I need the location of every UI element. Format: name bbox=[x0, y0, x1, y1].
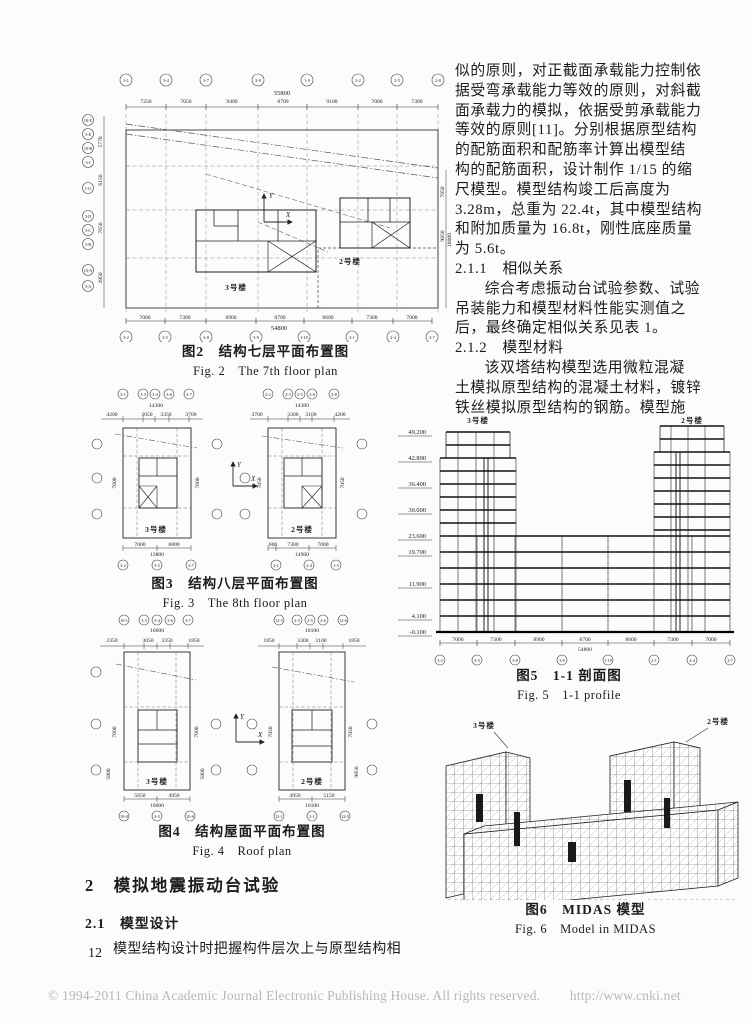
svg-text:7000: 7000 bbox=[139, 315, 150, 321]
svg-text:1-10: 1-10 bbox=[604, 658, 612, 663]
tower3-label: 3号楼 bbox=[467, 415, 489, 425]
dims-top: 7250 7050 9400 8700 9100 7000 7300 bbox=[126, 99, 438, 110]
svg-text:3-7: 3-7 bbox=[186, 392, 192, 397]
svg-text:9100: 9100 bbox=[326, 99, 337, 105]
svg-text:3-9: 3-9 bbox=[559, 658, 565, 663]
floor-plan-8th-drawing: 3-1 3-3 3-4 3-6 3-7 14300 4200 3050 3350… bbox=[85, 386, 385, 574]
svg-text:12-5: 12-5 bbox=[341, 814, 349, 819]
svg-text:12-3: 12-3 bbox=[275, 618, 283, 623]
svg-text:7050: 7050 bbox=[348, 726, 354, 737]
svg-text:2-3: 2-3 bbox=[285, 392, 291, 397]
svg-text:2-2: 2-2 bbox=[265, 392, 271, 397]
body-line: 等效的原则[11]。分别根据原型结构 bbox=[455, 121, 751, 141]
svg-text:3-E: 3-E bbox=[85, 132, 91, 137]
body-line: 后，最终确定相似关系见表 1。 bbox=[455, 319, 751, 339]
svg-text:7300: 7300 bbox=[490, 637, 501, 643]
svg-text:7000: 7000 bbox=[371, 99, 382, 105]
svg-text:1-G: 1-G bbox=[85, 186, 92, 191]
svg-text:2-5: 2-5 bbox=[307, 618, 313, 623]
svg-text:X: X bbox=[250, 475, 256, 483]
svg-text:3-8: 3-8 bbox=[203, 335, 209, 340]
svg-text:3号楼: 3号楼 bbox=[145, 524, 167, 534]
axis-arrows: Y X bbox=[236, 713, 264, 742]
svg-text:7600: 7600 bbox=[112, 477, 118, 488]
svg-text:1-10: 1-10 bbox=[300, 335, 308, 340]
svg-text:7250: 7250 bbox=[140, 99, 151, 105]
svg-text:10-1: 10-1 bbox=[120, 618, 128, 623]
grid-bubbles-top: 3-1 3-4 3-7 3-8 1-9 2-2 2-5 2-8 bbox=[120, 74, 444, 86]
tower2-label: 2号楼 bbox=[681, 415, 703, 425]
svg-text:5800: 5800 bbox=[200, 768, 206, 779]
svg-text:3350: 3350 bbox=[160, 412, 171, 418]
fig5-caption-zh: 图5 1-1 剖面图 bbox=[388, 666, 750, 686]
svg-text:10100: 10100 bbox=[305, 803, 319, 809]
svg-text:2-7: 2-7 bbox=[429, 335, 435, 340]
svg-text:3-2: 3-2 bbox=[123, 335, 129, 340]
svg-text:7000: 7000 bbox=[452, 637, 463, 643]
svg-text:4950: 4950 bbox=[289, 793, 300, 799]
svg-text:8900: 8900 bbox=[225, 315, 236, 321]
svg-text:2-1: 2-1 bbox=[309, 814, 315, 819]
svg-text:7000: 7000 bbox=[134, 542, 145, 548]
svg-text:1-9: 1-9 bbox=[304, 78, 310, 83]
figure-5-profile: 49.200 42.800 36.400 30.000 23.600 19.70… bbox=[388, 414, 750, 704]
svg-text:Y: Y bbox=[269, 192, 274, 200]
figure-4-roof-plan: 10-1 3-3 3-4 3-6 3-7 10600 2350 3050 335… bbox=[82, 612, 402, 860]
svg-text:2-1: 2-1 bbox=[651, 658, 657, 663]
svg-text:2-4: 2-4 bbox=[390, 335, 396, 340]
svg-text:30.000: 30.000 bbox=[408, 507, 426, 514]
body-line: 尺模型。模型结构竣工后高度为 bbox=[455, 181, 751, 201]
svg-text:8600: 8600 bbox=[322, 315, 333, 321]
svg-text:10-B: 10-B bbox=[84, 146, 93, 151]
svg-text:4950: 4950 bbox=[168, 793, 179, 799]
svg-text:12-6: 12-6 bbox=[339, 618, 347, 623]
svg-text:3100: 3100 bbox=[305, 412, 316, 418]
svg-text:3950: 3950 bbox=[98, 272, 104, 283]
core-tower-2 bbox=[340, 198, 410, 248]
svg-text:2-7: 2-7 bbox=[727, 658, 733, 663]
svg-text:3-D: 3-D bbox=[85, 214, 92, 219]
svg-text:14300: 14300 bbox=[295, 403, 309, 409]
svg-text:2-5: 2-5 bbox=[394, 78, 400, 83]
svg-text:8700: 8700 bbox=[277, 99, 288, 105]
svg-text:2-8: 2-8 bbox=[331, 392, 337, 397]
fig2-caption-en: Fig. 2 The 7th floor plan bbox=[78, 362, 453, 380]
svg-text:9850: 9850 bbox=[440, 230, 446, 241]
svg-text:4200: 4200 bbox=[334, 412, 345, 418]
copyright-footer: © 1994-2011 China Academic Journal Elect… bbox=[48, 988, 728, 1004]
svg-text:2-1: 2-1 bbox=[349, 335, 355, 340]
svg-text:8700: 8700 bbox=[579, 637, 590, 643]
svg-text:49.200: 49.200 bbox=[408, 429, 426, 436]
footer-text: © 1994-2011 China Academic Journal Elect… bbox=[48, 988, 540, 1003]
section-2-1-paragraph: 模型结构设计时把握构件层次上与原型结构相 bbox=[85, 938, 445, 958]
body-line: 似的原则，对正截面承载能力控制依 bbox=[455, 62, 751, 82]
fig2-caption-zh: 图2 结构七层平面布置图 bbox=[78, 342, 453, 362]
svg-text:5650: 5650 bbox=[134, 793, 145, 799]
svg-text:7050: 7050 bbox=[257, 477, 263, 488]
fig4-caption-zh: 图4 结构屋面平面布置图 bbox=[82, 822, 402, 842]
grid-bubbles-bottom: 3-2 3-5 3-8 3-9 1-10 2-1 2-4 2-7 bbox=[435, 655, 735, 665]
body-line: 该双塔结构模型选用微粒混凝 bbox=[455, 359, 751, 379]
svg-text:3-7: 3-7 bbox=[185, 618, 191, 623]
svg-text:5800: 5800 bbox=[106, 768, 112, 779]
tower3-plan: 3-1 3-3 3-4 3-6 3-7 14300 4200 3050 3350… bbox=[92, 389, 222, 570]
svg-text:2-1: 2-1 bbox=[273, 563, 279, 568]
fig4-caption-en: Fig. 4 Roof plan bbox=[82, 842, 402, 860]
tower2-plan: 2-2 2-3 2-5 2-6 2-8 14300 3700 3300 3100… bbox=[240, 389, 367, 570]
figure-3-floor-plan: 3-1 3-3 3-4 3-6 3-7 14300 4200 3050 3350… bbox=[85, 386, 385, 612]
grid-bubbles-bottom: 3-2 3-5 3-8 3-9 1-10 2-1 2-4 2-7 bbox=[120, 331, 438, 342]
svg-text:42.800: 42.800 bbox=[408, 455, 426, 462]
fig3-caption-en: Fig. 3 The 8th floor plan bbox=[85, 594, 385, 612]
page-number: 12 bbox=[88, 946, 102, 962]
svg-text:7300: 7300 bbox=[179, 315, 190, 321]
svg-text:2-8: 2-8 bbox=[435, 78, 441, 83]
svg-text:3-7: 3-7 bbox=[188, 563, 194, 568]
svg-text:7050: 7050 bbox=[340, 477, 346, 488]
body-line: 构的配筋面积，设计制作 1/15 的缩 bbox=[455, 161, 751, 181]
svg-text:7600: 7600 bbox=[195, 477, 201, 488]
body-line: 据受弯承载能力等效的原则，对斜截 bbox=[455, 82, 751, 102]
svg-text:3-5: 3-5 bbox=[154, 814, 160, 819]
grid-bubbles-left: 10-E 3-E 10-B 3-J 1-G 3-D 3-C 3-B 10-A 3… bbox=[83, 115, 105, 309]
svg-text:14300: 14300 bbox=[149, 403, 163, 409]
body-line: 面承载力的模拟，依据受剪承载能力 bbox=[455, 102, 751, 122]
svg-text:3-1: 3-1 bbox=[120, 392, 126, 397]
svg-text:36.400: 36.400 bbox=[408, 481, 426, 488]
figure-6-midas-model: 3号楼 2号楼 图6 MIDAS 模型 Fig. 6 Model in MIDA… bbox=[418, 702, 753, 938]
svg-text:54800: 54800 bbox=[578, 647, 592, 653]
plan-outline bbox=[126, 124, 438, 308]
svg-text:3700: 3700 bbox=[251, 412, 262, 418]
svg-text:11.900: 11.900 bbox=[409, 581, 426, 588]
paper-page: 3-1 3-4 3-7 3-8 1-9 2-2 2-5 2-8 55800 72… bbox=[0, 0, 753, 1024]
svg-text:6150: 6150 bbox=[98, 174, 104, 185]
svg-text:3-8: 3-8 bbox=[255, 78, 261, 83]
svg-text:3-5: 3-5 bbox=[474, 658, 480, 663]
svg-text:10600: 10600 bbox=[150, 803, 164, 809]
svg-text:14900: 14900 bbox=[295, 552, 309, 558]
svg-text:19.700: 19.700 bbox=[408, 549, 426, 556]
dims-right: 7050 9850 18000 bbox=[440, 170, 453, 308]
svg-text:7650: 7650 bbox=[98, 222, 104, 233]
svg-text:3700: 3700 bbox=[185, 412, 196, 418]
svg-text:8600: 8600 bbox=[625, 637, 636, 643]
svg-text:3-A: 3-A bbox=[85, 284, 92, 289]
svg-text:7300: 7300 bbox=[411, 99, 422, 105]
svg-text:2350: 2350 bbox=[106, 638, 117, 644]
tower2-label: 2号楼 bbox=[339, 256, 361, 266]
tower2-roof: 12-3 2-3 2-5 2-6 12-6 10100 1850 3300 31… bbox=[247, 615, 377, 821]
svg-text:3-B: 3-B bbox=[85, 242, 91, 247]
section-2-block: 2 模拟地震振动台试验 2.1 模型设计 模型结构设计时把握构件层次上与原型结构… bbox=[85, 872, 445, 958]
svg-text:5150: 5150 bbox=[323, 793, 334, 799]
section-2-heading: 2 模拟地震振动台试验 bbox=[85, 872, 445, 896]
svg-text:7000: 7000 bbox=[705, 637, 716, 643]
svg-text:23.600: 23.600 bbox=[408, 533, 426, 540]
svg-text:7050: 7050 bbox=[268, 726, 274, 737]
heading-2-1-2: 2.1.2 模型材料 bbox=[455, 339, 751, 359]
svg-text:3-8: 3-8 bbox=[512, 658, 518, 663]
svg-text:1850: 1850 bbox=[348, 638, 359, 644]
heading-2-1-1: 2.1.1 相似关系 bbox=[455, 260, 751, 280]
svg-text:3-4: 3-4 bbox=[163, 78, 169, 83]
svg-text:3-3: 3-3 bbox=[140, 392, 146, 397]
body-line: 吊装能力和模型材料性能实测值之 bbox=[455, 300, 751, 320]
svg-text:4200: 4200 bbox=[106, 412, 117, 418]
svg-text:X: X bbox=[285, 211, 291, 219]
podium-floors bbox=[440, 536, 730, 632]
svg-text:3-2: 3-2 bbox=[437, 658, 443, 663]
grid-lines bbox=[126, 114, 438, 312]
svg-text:3号楼: 3号楼 bbox=[146, 776, 168, 786]
body-line: 为 5.6t。 bbox=[455, 240, 751, 260]
svg-text:7050: 7050 bbox=[180, 99, 191, 105]
svg-text:10600: 10600 bbox=[150, 628, 164, 634]
svg-text:7300: 7300 bbox=[667, 637, 678, 643]
floor-plan-7th-drawing: 3-1 3-4 3-7 3-8 1-9 2-2 2-5 2-8 55800 72… bbox=[78, 70, 453, 342]
svg-text:2-4: 2-4 bbox=[306, 563, 312, 568]
svg-text:8900: 8900 bbox=[533, 637, 544, 643]
svg-text:5770: 5770 bbox=[98, 136, 104, 147]
svg-text:7300: 7300 bbox=[366, 315, 377, 321]
svg-text:2-5: 2-5 bbox=[297, 392, 303, 397]
svg-text:10100: 10100 bbox=[305, 628, 319, 634]
svg-text:13800: 13800 bbox=[150, 552, 164, 558]
svg-text:3-7: 3-7 bbox=[203, 78, 209, 83]
svg-text:-0.100: -0.100 bbox=[409, 629, 426, 636]
roof-plan-drawing: 10-1 3-3 3-4 3-6 3-7 10600 2350 3050 335… bbox=[82, 612, 402, 822]
svg-text:7000: 7000 bbox=[406, 315, 417, 321]
svg-text:3350: 3350 bbox=[161, 638, 172, 644]
fig6-caption-zh: 图6 MIDAS 模型 bbox=[418, 900, 753, 920]
svg-text:12-1: 12-1 bbox=[275, 814, 283, 819]
svg-text:3-6: 3-6 bbox=[166, 392, 172, 397]
svg-text:3-3: 3-3 bbox=[141, 618, 147, 623]
svg-text:7050: 7050 bbox=[440, 186, 446, 197]
svg-text:10-A: 10-A bbox=[84, 268, 93, 273]
svg-text:3-4: 3-4 bbox=[152, 392, 158, 397]
midas-model-drawing: 3号楼 2号楼 bbox=[418, 702, 753, 900]
svg-text:2号楼: 2号楼 bbox=[291, 524, 313, 534]
svg-text:3-4: 3-4 bbox=[154, 618, 160, 623]
svg-text:3-9: 3-9 bbox=[253, 335, 259, 340]
section-2-1-heading: 2.1 模型设计 bbox=[85, 912, 445, 932]
svg-text:2-2: 2-2 bbox=[355, 78, 361, 83]
fig6-caption-en: Fig. 6 Model in MIDAS bbox=[418, 920, 753, 938]
body-line: 综合考虑振动台试验参数、试验 bbox=[455, 280, 751, 300]
svg-text:2-6: 2-6 bbox=[309, 392, 315, 397]
svg-text:7600: 7600 bbox=[112, 726, 118, 737]
body-line: 和附加质量为 16.8t，刚性底座质量 bbox=[455, 220, 751, 240]
svg-text:7000: 7000 bbox=[317, 542, 328, 548]
profile-drawing: 49.200 42.800 36.400 30.000 23.600 19.70… bbox=[388, 414, 750, 666]
dims-bottom: 7000 7300 8900 8700 8600 7300 7000 54800 bbox=[440, 637, 730, 653]
svg-text:9850: 9850 bbox=[354, 766, 360, 777]
core-tower-3 bbox=[196, 210, 316, 272]
svg-text:7600: 7600 bbox=[194, 726, 200, 737]
svg-text:6800: 6800 bbox=[168, 542, 179, 548]
svg-text:2-6: 2-6 bbox=[320, 618, 326, 623]
grid-bubbles: 2-2 2-3 2-5 2-6 2-8 bbox=[263, 389, 339, 399]
svg-text:3300: 3300 bbox=[287, 412, 298, 418]
grid-bubbles: 10-1 3-3 3-4 3-6 3-7 bbox=[119, 615, 193, 625]
fig3-caption-zh: 图3 结构八层平面布置图 bbox=[85, 574, 385, 594]
tower3-label: 3号楼 bbox=[473, 720, 495, 730]
dim-total-top: 55800 bbox=[274, 90, 290, 97]
tower3-roof: 10-1 3-3 3-4 3-6 3-7 10600 2350 3050 335… bbox=[91, 615, 221, 821]
svg-text:2-3: 2-3 bbox=[294, 618, 300, 623]
body-line: 的配筋面积和配筋率计算出模型结 bbox=[455, 141, 751, 161]
svg-text:9400: 9400 bbox=[226, 99, 237, 105]
tower3-floors bbox=[440, 432, 516, 632]
svg-text:3100: 3100 bbox=[315, 638, 326, 644]
svg-text:10-4: 10-4 bbox=[120, 814, 129, 819]
grid-bubbles: 12-3 2-3 2-5 2-6 12-6 bbox=[274, 615, 348, 625]
svg-text:3-6: 3-6 bbox=[167, 618, 173, 623]
svg-text:1850: 1850 bbox=[263, 638, 274, 644]
right-column-text: 似的原则，对正截面承载能力控制依 据受弯承载能力等效的原则，对斜截 面承载力的模… bbox=[455, 62, 751, 418]
svg-text:2-4: 2-4 bbox=[689, 658, 695, 663]
svg-text:Y: Y bbox=[237, 461, 242, 469]
svg-text:1-3: 1-3 bbox=[333, 563, 339, 568]
svg-text:1850: 1850 bbox=[188, 638, 199, 644]
svg-text:Y: Y bbox=[240, 713, 245, 721]
grid-bubbles: 3-1 3-3 3-4 3-6 3-7 bbox=[118, 389, 194, 399]
svg-text:18000: 18000 bbox=[447, 233, 453, 247]
svg-text:4.100: 4.100 bbox=[412, 613, 426, 620]
svg-text:3-1: 3-1 bbox=[123, 78, 129, 83]
body-line: 3.28m，总重为 22.4t，其中模型结构 bbox=[455, 201, 751, 221]
svg-text:8700: 8700 bbox=[274, 315, 285, 321]
figure-2-floor-plan: 3-1 3-4 3-7 3-8 1-9 2-2 2-5 2-8 55800 72… bbox=[78, 70, 453, 380]
svg-text:3-5: 3-5 bbox=[162, 335, 168, 340]
tower2-label: 2号楼 bbox=[707, 716, 729, 726]
svg-text:2号楼: 2号楼 bbox=[301, 776, 323, 786]
svg-text:7300: 7300 bbox=[287, 542, 298, 548]
svg-text:3-C: 3-C bbox=[85, 228, 91, 233]
svg-text:3-5: 3-5 bbox=[154, 563, 160, 568]
tower3-label: 3号楼 bbox=[225, 282, 247, 292]
footer-url: http://www.cnki.net bbox=[570, 988, 681, 1003]
svg-text:3-J: 3-J bbox=[85, 160, 90, 165]
svg-text:3300: 3300 bbox=[297, 638, 308, 644]
svg-text:10-E: 10-E bbox=[84, 118, 93, 123]
svg-text:10-6: 10-6 bbox=[186, 814, 194, 819]
fig5-caption-en: Fig. 5 1-1 profile bbox=[388, 686, 750, 704]
svg-text:3-2: 3-2 bbox=[120, 563, 126, 568]
body-line: 土模拟原型结构的混凝土材料，镀锌 bbox=[455, 379, 751, 399]
axis-arrows: Y X bbox=[233, 461, 257, 486]
svg-text:X: X bbox=[257, 731, 263, 739]
dims-bottom: 7000 7300 8900 8700 8600 7300 7000 54800 bbox=[126, 315, 432, 332]
svg-text:54800: 54800 bbox=[271, 325, 287, 332]
elevation-labels: 49.200 42.800 36.400 30.000 23.600 19.70… bbox=[398, 429, 432, 636]
